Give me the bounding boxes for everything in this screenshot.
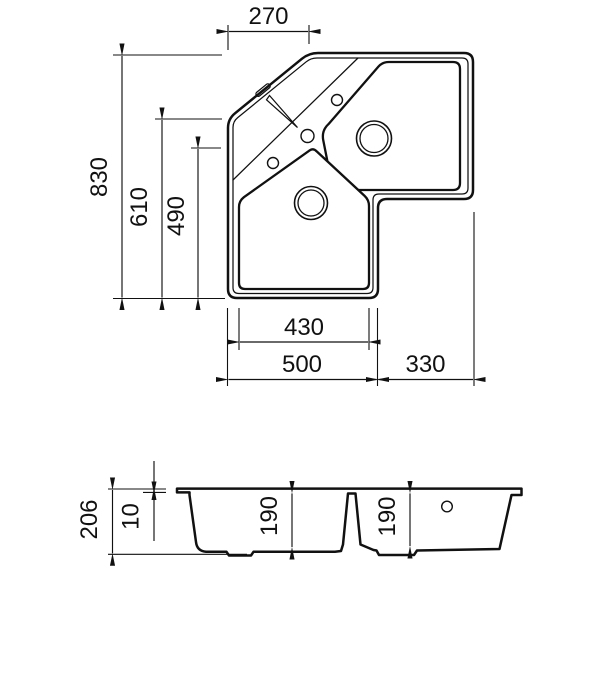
dim-top-width-label: 270	[248, 3, 288, 30]
dimension-right-width: 330	[379, 351, 474, 380]
section-view: 206 10 190 190	[76, 461, 522, 556]
dimension-bowl-depth: 490	[163, 148, 221, 298]
section-profile	[177, 489, 522, 556]
dim-left-depth-label: 610	[126, 187, 153, 227]
center-hole-icon	[301, 130, 314, 143]
dim-overall-height-label: 206	[76, 499, 103, 539]
tap-hole-icon	[332, 95, 343, 106]
dim-right-bowl-depth-label: 190	[374, 496, 401, 536]
technical-drawing-canvas: 270 830 610 490 430	[0, 0, 600, 689]
pointer-mark	[267, 96, 298, 128]
dimension-overall-height: 206	[76, 490, 113, 553]
dimension-top-width: 270	[228, 3, 309, 50]
dim-overall-depth-label: 830	[86, 157, 113, 197]
dimension-bowl-width: 430	[240, 314, 368, 342]
corner-sink-drawing: 270 830 610 490 430	[0, 0, 600, 689]
dimension-left-bowl-depth: 190	[256, 493, 292, 547]
top-view: 270 830 610 490 430	[86, 3, 474, 386]
dimension-left-width: 500	[229, 351, 377, 380]
dimension-right-bowl-depth: 190	[374, 493, 410, 546]
tap-hole-icon	[268, 158, 279, 169]
tap-hole-icon	[442, 501, 453, 512]
right-bowl-drain-icon	[357, 121, 392, 156]
dim-right-width-label: 330	[405, 351, 445, 378]
dim-bowl-width-label: 430	[284, 314, 324, 341]
dimension-overall-depth: 830	[86, 55, 225, 299]
right-bowl	[323, 62, 460, 190]
dim-left-width-label: 500	[282, 351, 322, 378]
dim-rim-thickness-label: 10	[118, 503, 145, 530]
dimension-rim-thickness: 10	[118, 461, 155, 541]
dim-bowl-depth-label: 490	[163, 196, 190, 236]
dim-left-bowl-depth-label: 190	[256, 496, 283, 536]
left-bowl-drain-icon	[295, 187, 328, 220]
